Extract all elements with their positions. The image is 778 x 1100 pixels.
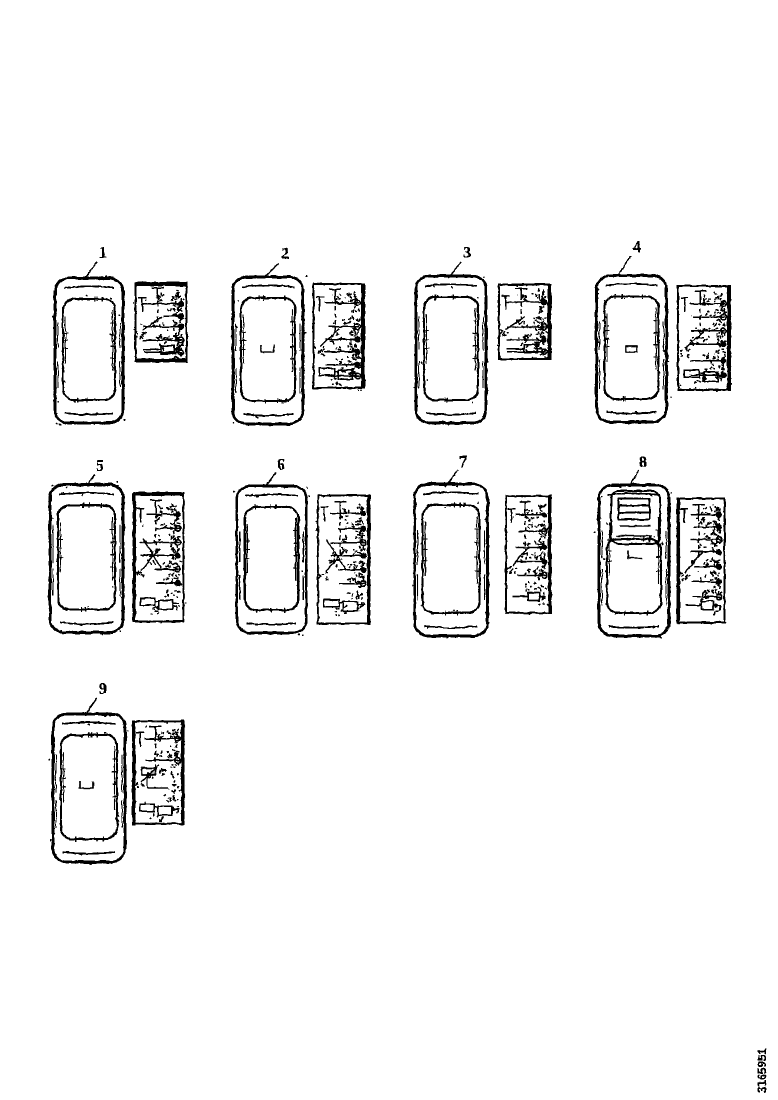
svg-text:3165951: 3165951 (757, 1048, 769, 1093)
svg-text:5: 5 (96, 456, 104, 475)
svg-text:6: 6 (277, 455, 285, 474)
svg-text:2: 2 (281, 244, 289, 263)
svg-text:4: 4 (633, 237, 641, 256)
svg-text:1: 1 (99, 243, 107, 262)
svg-text:9: 9 (99, 679, 107, 698)
svg-text:8: 8 (639, 452, 647, 471)
svg-text:3: 3 (463, 243, 471, 262)
svg-text:7: 7 (459, 452, 467, 471)
